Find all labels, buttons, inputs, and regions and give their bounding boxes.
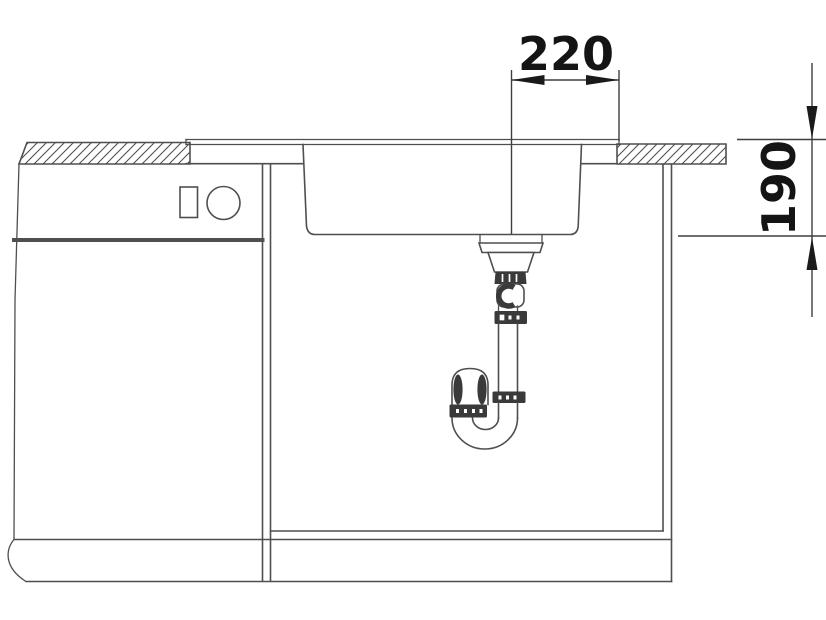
dimension-vertical-190: 190	[678, 63, 826, 317]
appliance-controls	[180, 187, 240, 220]
collar-dot	[514, 396, 517, 400]
sink-bowl	[303, 145, 582, 235]
collar-dot	[506, 396, 509, 400]
appliance-knob-icon	[207, 187, 240, 220]
dimension-label-190: 190	[752, 140, 806, 236]
trap-bend-outer	[452, 418, 518, 449]
countertop-left-section	[19, 143, 190, 165]
arrow-down-icon	[807, 106, 818, 139]
sink-installation-drawing: 220 190	[0, 0, 826, 620]
nut-dot	[464, 409, 467, 413]
drain-trap	[450, 235, 544, 450]
plinth-left-break-edge	[8, 540, 26, 582]
trap-bend-inner	[473, 418, 499, 430]
outlet-elbow-shade-right	[477, 375, 486, 405]
sink	[186, 140, 619, 235]
arrow-up-icon	[807, 237, 818, 270]
nut-dot	[501, 316, 504, 320]
nut-dot	[456, 409, 459, 413]
cabinet-left-break-edge	[14, 164, 19, 540]
drain-flange	[479, 243, 543, 253]
knurled-ring	[495, 272, 527, 284]
strainer-cup	[488, 253, 534, 273]
outlet-elbow-shade-left	[453, 375, 462, 405]
nut-dot	[509, 316, 512, 320]
nut-dot	[517, 316, 520, 320]
nut-dot	[480, 409, 483, 413]
appliance-display-icon	[180, 187, 198, 218]
countertop-right-section	[617, 144, 726, 164]
nut-dot	[472, 409, 475, 413]
collar-dot	[499, 396, 502, 400]
dimension-label-220: 220	[518, 27, 614, 81]
